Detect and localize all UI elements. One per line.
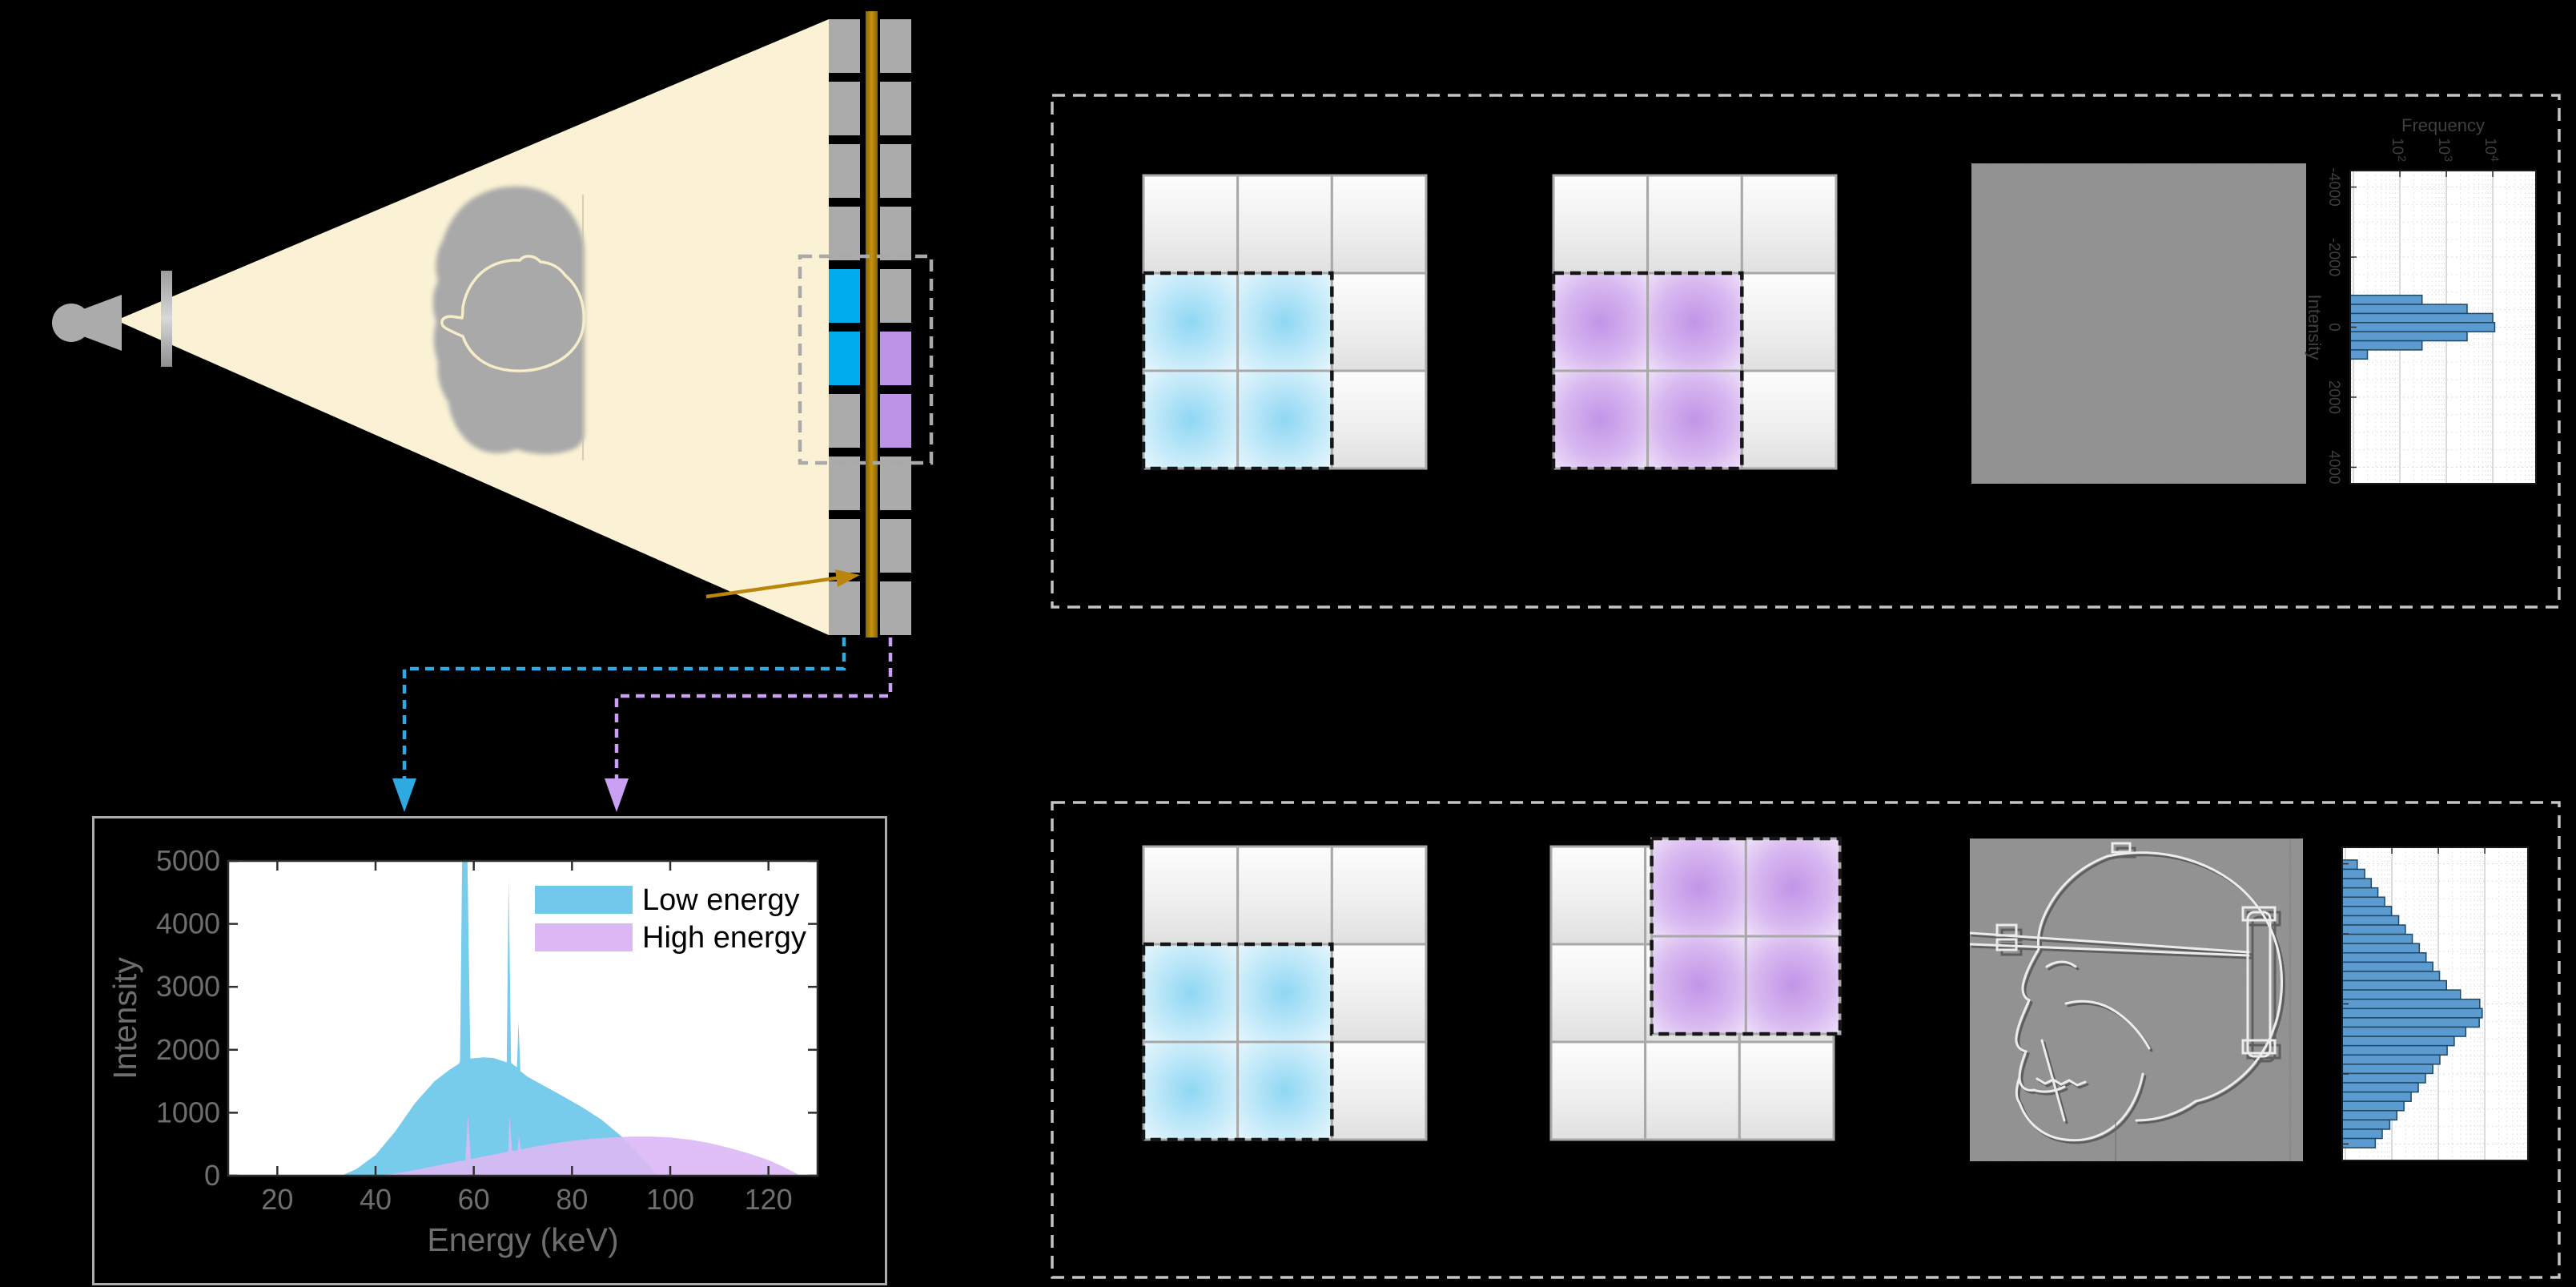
detector-pixel-rear xyxy=(880,19,911,73)
grid-cell xyxy=(1551,1042,1646,1140)
histogram-bar xyxy=(2342,897,2385,907)
pixel-grid-high xyxy=(1538,834,1847,1152)
grid-cell xyxy=(1238,847,1332,944)
intensity-tick-label: 2000 xyxy=(2325,380,2342,414)
grid-cell xyxy=(1238,175,1332,273)
grid-cell-purple xyxy=(1553,273,1648,371)
detector-front-column xyxy=(829,19,860,635)
histogram-bar xyxy=(2350,304,2467,313)
grid-cell xyxy=(1332,175,1426,273)
detector-pixel-front xyxy=(829,394,860,448)
detector-pixel-rear xyxy=(880,332,911,385)
detector-pixel-rear xyxy=(880,519,911,573)
histogram-bar xyxy=(2342,990,2461,999)
xray-source-horn xyxy=(83,295,122,351)
legend-label: High energy xyxy=(642,921,806,955)
intensity-tick-label: 0 xyxy=(2325,323,2342,332)
histogram-bar xyxy=(2342,869,2365,879)
x-tick-label: 80 xyxy=(556,1183,588,1216)
grid-cell xyxy=(1332,1042,1426,1140)
y-tick-label: 1000 xyxy=(156,1096,220,1128)
grid-cell xyxy=(1742,175,1836,273)
x-tick-label: 40 xyxy=(360,1183,392,1216)
histogram-bar xyxy=(2342,1092,2411,1102)
freq-tick-label: 102 xyxy=(2389,138,2409,162)
grid-cell-blue xyxy=(1238,1042,1332,1140)
pixel-grid-low xyxy=(1131,834,1439,1152)
intensity-tick-label: 4000 xyxy=(2325,450,2342,484)
grid-cell xyxy=(1648,175,1742,273)
histogram-bar xyxy=(2342,1120,2389,1129)
x-tick-label: 120 xyxy=(745,1183,793,1216)
histogram-bar xyxy=(2342,1055,2440,1064)
detector-pixel-rear xyxy=(880,82,911,135)
detector-pixel-rear xyxy=(880,207,911,260)
route-low-energy-arrowhead xyxy=(392,778,416,812)
grid-cell-blue xyxy=(1143,371,1238,469)
histogram-bar xyxy=(2342,999,2480,1009)
grid-cell xyxy=(1332,847,1426,944)
histogram-bar xyxy=(2342,1027,2465,1036)
histogram-figure xyxy=(2282,781,2568,1185)
histogram-bar xyxy=(2350,341,2422,350)
grid-cell xyxy=(1646,1042,1740,1140)
detector-pixel-front xyxy=(829,519,860,573)
interlayer-filter-gold xyxy=(866,11,878,637)
histogram-bar xyxy=(2342,1139,2375,1148)
route-high-energy xyxy=(617,637,890,778)
histogram-bar xyxy=(2342,1111,2397,1120)
detector-pixel-front xyxy=(829,144,860,198)
y-tick-label: 5000 xyxy=(156,844,220,877)
grid-cell-purple-shifted xyxy=(1746,839,1840,936)
detector-pixel-front xyxy=(829,332,860,385)
route-high-energy-arrowhead xyxy=(605,778,629,812)
histogram-figure: Frequency102103104-4000-2000020004000Int… xyxy=(2290,104,2576,509)
difference-image-skull xyxy=(1970,839,2303,1161)
histogram-bar xyxy=(2342,971,2440,981)
histogram-bar xyxy=(2342,1036,2454,1046)
grid-cell xyxy=(1742,273,1836,371)
difference-image-uniform xyxy=(1971,163,2306,484)
pixel-grid-high xyxy=(1541,163,1849,481)
grid-cell xyxy=(1332,944,1426,1042)
grid-cell xyxy=(1332,273,1426,371)
head-phantom-blob xyxy=(433,187,585,454)
histogram-bar xyxy=(2350,296,2422,304)
histogram-bar xyxy=(2350,323,2494,332)
grid-cell xyxy=(1551,847,1646,944)
histogram-bar xyxy=(2342,907,2392,916)
histogram-bar xyxy=(2342,981,2446,991)
grid-cell-purple-shifted xyxy=(1652,936,1746,1034)
grid-cell xyxy=(1551,944,1646,1042)
histogram-bar xyxy=(2342,888,2378,898)
histogram-bar xyxy=(2342,1008,2482,1018)
freq-tick-label: 103 xyxy=(2435,138,2455,162)
detector-pixel-front xyxy=(829,207,860,260)
acquisition-schematic xyxy=(0,0,1001,841)
grid-cell-purple xyxy=(1648,273,1742,371)
spectrum-figure: 20406080100120010002000300040005000Energ… xyxy=(92,816,887,1285)
detector-pixel-rear xyxy=(880,269,911,323)
detector-pixel-front xyxy=(829,269,860,323)
legend-label: Low energy xyxy=(642,883,799,917)
legend-swatch xyxy=(535,923,633,951)
grid-cell-purple-shifted xyxy=(1652,839,1746,936)
detector-pixel-rear xyxy=(880,144,911,198)
noise-overlay xyxy=(1971,163,2306,484)
detector-pixel-rear xyxy=(880,394,911,448)
y-tick-label: 2000 xyxy=(156,1033,220,1066)
x-tick-label: 60 xyxy=(458,1183,490,1216)
grid-cell-blue xyxy=(1238,273,1332,371)
grid-cell xyxy=(1739,1042,1834,1140)
y-tick-label: 4000 xyxy=(156,907,220,940)
grid-cell-blue xyxy=(1238,371,1332,469)
intensity-tick-label: -4000 xyxy=(2325,167,2342,207)
detector-rear-column xyxy=(880,19,911,635)
y-tick-label: 0 xyxy=(204,1159,220,1192)
histogram-bar xyxy=(2350,332,2467,340)
histogram-bar xyxy=(2342,943,2419,953)
grid-cell xyxy=(1742,371,1836,469)
route-low-energy xyxy=(404,637,844,778)
histogram-bar xyxy=(2342,1073,2425,1083)
freq-tick-label: 104 xyxy=(2482,138,2502,162)
grid-cell xyxy=(1143,847,1238,944)
spectrum-plot: 20406080100120010002000300040005000Energ… xyxy=(94,818,885,1283)
x-tick-label: 100 xyxy=(646,1183,694,1216)
histogram-bar xyxy=(2342,1018,2479,1028)
collimator xyxy=(161,271,172,367)
grid-cell-purple xyxy=(1553,371,1648,469)
legend-swatch xyxy=(535,886,633,914)
grid-cell-blue xyxy=(1238,944,1332,1042)
histogram-bar xyxy=(2342,1101,2404,1111)
detector-pixel-rear xyxy=(880,581,911,635)
histogram-axis-label: Intensity xyxy=(2305,295,2325,360)
y-axis-label: Intensity xyxy=(106,957,143,1080)
grid-cell-purple xyxy=(1648,371,1742,469)
detector-pixel-front xyxy=(829,82,860,135)
histogram-title: Frequency xyxy=(2401,115,2485,135)
histogram-bar xyxy=(2342,879,2371,888)
y-tick-label: 3000 xyxy=(156,970,220,1003)
figure-canvas: { "canvas": {"width": 3217, "height": 16… xyxy=(0,0,2576,1285)
histogram-bar xyxy=(2342,953,2426,963)
histogram-bar xyxy=(2342,1064,2433,1074)
grid-cell-blue xyxy=(1143,944,1238,1042)
histogram-bar xyxy=(2342,1083,2418,1092)
histogram-bar xyxy=(2350,313,2493,322)
histogram-bar xyxy=(2342,925,2405,935)
detector-pixel-front xyxy=(829,581,860,635)
detector-pixel-front xyxy=(829,19,860,73)
histogram-bar xyxy=(2342,962,2433,971)
grid-cell xyxy=(1143,175,1238,273)
x-tick-label: 20 xyxy=(261,1183,293,1216)
histogram-bar xyxy=(2342,1046,2447,1056)
histogram-bar xyxy=(2342,860,2357,870)
histogram-bar xyxy=(2342,915,2399,925)
grid-cell-blue xyxy=(1143,1042,1238,1140)
intensity-tick-label: -2000 xyxy=(2325,238,2342,277)
histogram-bar xyxy=(2350,350,2368,359)
x-axis-label: Energy (keV) xyxy=(427,1221,618,1258)
pixel-grid-low xyxy=(1131,163,1439,481)
grid-cell-blue xyxy=(1143,273,1238,371)
grid-cell xyxy=(1332,371,1426,469)
grid-cell-purple-shifted xyxy=(1746,936,1840,1034)
grid-cell xyxy=(1553,175,1648,273)
histogram-bar xyxy=(2342,935,2413,944)
histogram-bar xyxy=(2342,1129,2382,1139)
